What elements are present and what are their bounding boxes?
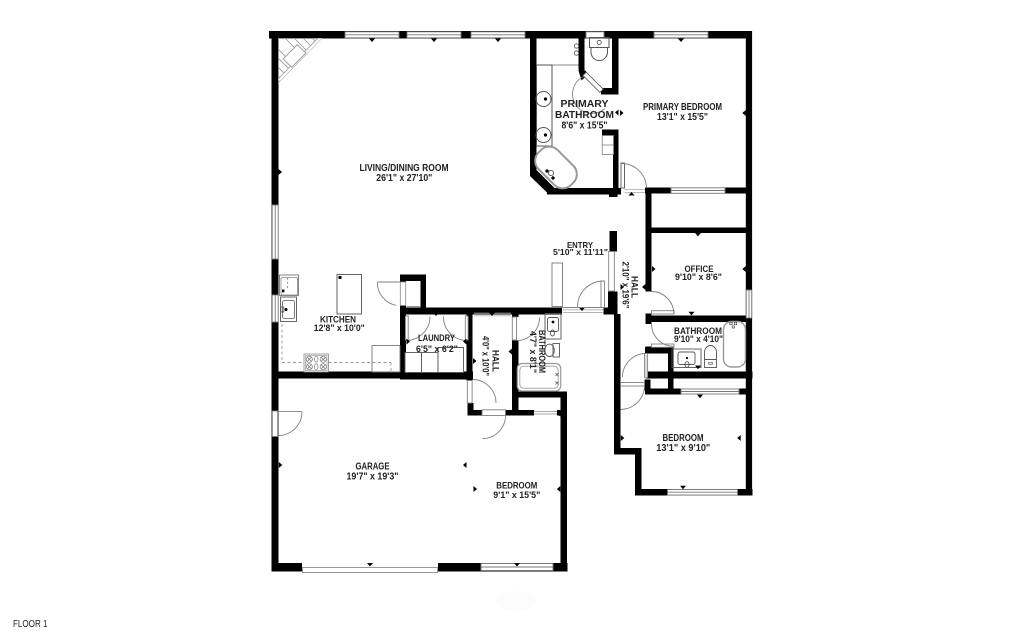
svg-text:13'1" x 15'5": 13'1" x 15'5"	[657, 112, 708, 123]
svg-text:6'5" x 6'2": 6'5" x 6'2"	[416, 344, 458, 354]
svg-text:9'10" x 8'6": 9'10" x 8'6"	[675, 272, 722, 282]
svg-text:BATHROOM: BATHROOM	[555, 110, 614, 121]
svg-text:26'1" x 27'10": 26'1" x 27'10"	[376, 173, 432, 184]
svg-text:4'7" x 8'1": 4'7" x 8'1"	[528, 331, 538, 373]
svg-text:9'10" x 4'10": 9'10" x 4'10"	[674, 334, 723, 344]
svg-text:2'10" x 19'6": 2'10" x 19'6"	[619, 262, 630, 309]
svg-text:13'1" x 9'10": 13'1" x 9'10"	[656, 443, 710, 454]
svg-text:PRIMARY: PRIMARY	[561, 99, 609, 110]
svg-text:19'7" x 19'3": 19'7" x 19'3"	[347, 472, 399, 483]
svg-text:9'1" x 15'5": 9'1" x 15'5"	[493, 489, 540, 500]
svg-text:LAUNDRY: LAUNDRY	[418, 333, 456, 343]
svg-text:8'6" x 15'5": 8'6" x 15'5"	[562, 121, 608, 132]
svg-text:5'10" x 11'11": 5'10" x 11'11"	[553, 247, 608, 257]
svg-text:FLOOR 1: FLOOR 1	[13, 618, 48, 630]
svg-text:HALL: HALL	[490, 350, 500, 372]
svg-text:4'0" x 10'0": 4'0" x 10'0"	[480, 336, 490, 376]
svg-text:12'8" x 10'0": 12'8" x 10'0"	[314, 323, 365, 333]
